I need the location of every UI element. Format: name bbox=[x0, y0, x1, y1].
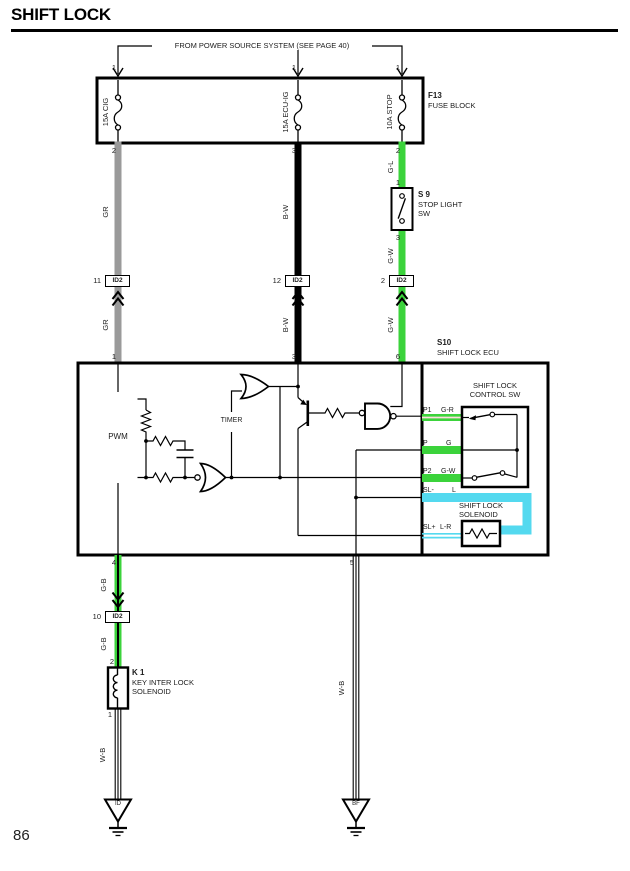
terminal-p-wire: G bbox=[446, 440, 451, 449]
wire-sl-plus-lr bbox=[422, 534, 462, 538]
pin-label: 1 bbox=[386, 178, 400, 187]
wire-label-gb-upper: G-B bbox=[99, 560, 109, 610]
timer-label: TIMER bbox=[212, 417, 251, 426]
wire-label-gw-upper: G-W bbox=[386, 231, 396, 281]
pin-label: 2 bbox=[100, 657, 114, 666]
wire-label-gw-lower: G-W bbox=[386, 300, 396, 350]
connector-id2: ID2 bbox=[285, 275, 310, 287]
terminal-sl-plus-wire: L-R bbox=[440, 524, 451, 533]
terminal-p2-wire: G-W bbox=[441, 468, 455, 477]
connector-number: 2 bbox=[369, 276, 385, 285]
fuse-label-cig: 15A CIG bbox=[101, 87, 111, 137]
key-interlock-name2: SOLENOID bbox=[132, 688, 171, 697]
terminal-p1-wire: G-R bbox=[441, 407, 454, 416]
pin-label: 3 bbox=[282, 146, 296, 155]
pin-label: 1 bbox=[98, 710, 112, 719]
terminal-sl-plus: SL+ bbox=[423, 524, 436, 533]
wire-label-gr-lower: GR bbox=[101, 300, 111, 350]
connector-id2: ID2 bbox=[389, 275, 414, 287]
pin-label: 1 bbox=[282, 63, 296, 72]
junction-dot bbox=[515, 448, 519, 452]
terminal-p1: P1 bbox=[423, 407, 432, 416]
pin-label: 6 bbox=[386, 352, 400, 361]
page-number: 86 bbox=[13, 827, 30, 844]
stop-light-sw-name2: SW bbox=[418, 210, 430, 219]
pin-label: 2 bbox=[102, 146, 116, 155]
fuse-label-stop: 10A STOP bbox=[385, 87, 395, 137]
ground-label-id: ID bbox=[110, 801, 126, 807]
terminal-sl-minus: SL- bbox=[423, 487, 434, 496]
pin-label: 1 bbox=[386, 63, 400, 72]
pin-label: 5 bbox=[340, 558, 354, 567]
wire-label-bw-lower: B-W bbox=[281, 300, 291, 350]
connector-number: 11 bbox=[85, 276, 101, 285]
stop-light-sw-id: S 9 bbox=[418, 191, 430, 200]
power-feed-arrowheads bbox=[113, 68, 407, 76]
ecu-name: SHIFT LOCK ECU bbox=[437, 349, 499, 358]
terminal-sl-minus-wire: L bbox=[452, 487, 456, 496]
key-interlock-id: K 1 bbox=[132, 669, 144, 678]
pin-label: 1 bbox=[102, 352, 116, 361]
title-rule bbox=[11, 29, 618, 32]
wire-wb-right bbox=[353, 555, 359, 800]
ecu-id: S10 bbox=[437, 339, 451, 348]
power-source-bracket bbox=[118, 46, 402, 74]
terminal-p: P bbox=[423, 440, 428, 449]
terminal-p2: P2 bbox=[423, 468, 432, 477]
ground-label-bf: BF bbox=[348, 801, 364, 807]
solenoid-name2: SOLENOID bbox=[459, 511, 498, 520]
fuse-label-ecu-ig: 15A ECU-IG bbox=[281, 87, 291, 137]
wire-label-gr-upper: GR bbox=[101, 187, 111, 237]
connector-chevrons-up bbox=[113, 292, 408, 306]
power-source-note: FROM POWER SOURCE SYSTEM (SEE PAGE 40) bbox=[152, 41, 372, 50]
wiring-diagram-canvas bbox=[0, 0, 630, 871]
wire-label-wb-left: W-B bbox=[98, 730, 108, 780]
connector-id2: ID2 bbox=[105, 275, 130, 287]
ecu-internal-circuit bbox=[118, 364, 422, 555]
pin-label: 3 bbox=[282, 352, 296, 361]
page-title: SHIFT LOCK bbox=[11, 5, 111, 25]
wire-label-wb-right: W-B bbox=[337, 663, 347, 713]
control-sw-name2: CONTROL SW bbox=[455, 391, 535, 400]
wire-label-bw-upper: B-W bbox=[281, 187, 291, 237]
pin-label: 1 bbox=[102, 63, 116, 72]
fuse-block-name: FUSE BLOCK bbox=[428, 102, 476, 111]
pwm-label: PWM bbox=[98, 433, 138, 442]
junction-dots bbox=[144, 385, 358, 500]
wire-wb-left bbox=[115, 709, 121, 800]
fuse-block-id: F13 bbox=[428, 92, 442, 101]
fuse-block-box bbox=[97, 78, 423, 143]
connector-number: 12 bbox=[265, 276, 281, 285]
